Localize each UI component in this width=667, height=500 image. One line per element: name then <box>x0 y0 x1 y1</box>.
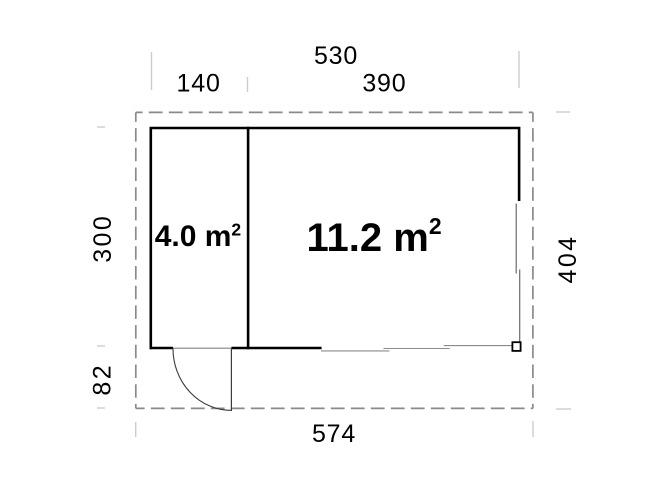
svg-text:574: 574 <box>312 420 356 448</box>
svg-text:4.0 m2: 4.0 m2 <box>155 220 242 253</box>
svg-text:404: 404 <box>554 235 582 284</box>
svg-text:530: 530 <box>314 42 358 70</box>
svg-text:11.2 m2: 11.2 m2 <box>307 213 442 260</box>
svg-text:300: 300 <box>89 214 117 263</box>
svg-text:82: 82 <box>89 363 117 396</box>
svg-text:390: 390 <box>362 70 406 98</box>
svg-text:140: 140 <box>177 70 221 98</box>
